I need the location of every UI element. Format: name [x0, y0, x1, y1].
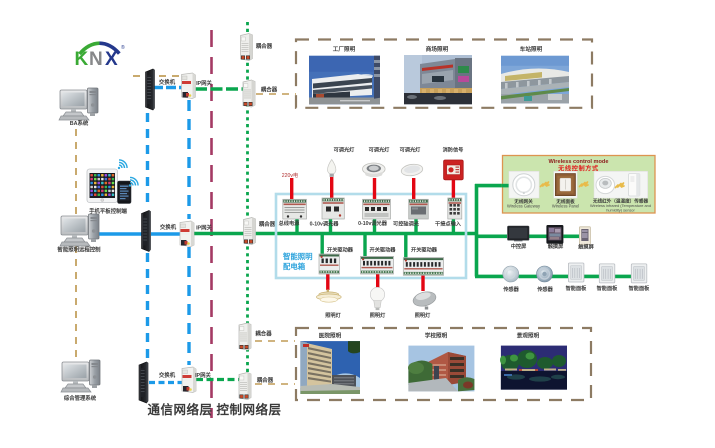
svg-text:耦合器: 耦合器 [257, 376, 274, 384]
svg-text:耦合器: 耦合器 [261, 86, 278, 94]
svg-text:开关驱动器: 开关驱动器 [370, 246, 397, 254]
svg-text:0-10v调光器: 0-10v调光器 [310, 220, 340, 228]
svg-text:总线电源: 总线电源 [279, 219, 301, 227]
svg-text:医院照明: 医院照明 [319, 332, 342, 340]
svg-text:humidity) sensor: humidity) sensor [606, 208, 635, 213]
svg-text:0-10v调光器: 0-10v调光器 [358, 219, 388, 227]
svg-text:传感器: 传感器 [536, 285, 553, 293]
svg-text:耦合器: 耦合器 [259, 220, 276, 228]
svg-text:220v电: 220v电 [282, 171, 298, 179]
svg-text:X: X [105, 49, 118, 70]
svg-text:Wireless Panel: Wireless Panel [552, 204, 579, 209]
svg-text:智能面板: 智能面板 [566, 284, 588, 292]
svg-text:智能面板: 智能面板 [629, 284, 651, 292]
svg-text:消防信号: 消防信号 [443, 146, 464, 154]
svg-text:可调光灯: 可调光灯 [334, 146, 356, 154]
svg-text:开关驱动器: 开关驱动器 [327, 246, 354, 254]
svg-text:中控屏: 中控屏 [511, 242, 527, 250]
svg-text:干接点输入: 干接点输入 [435, 220, 462, 228]
svg-text:照明灯: 照明灯 [370, 311, 386, 319]
svg-text:传感器: 传感器 [502, 285, 519, 293]
svg-text:交换机: 交换机 [160, 223, 177, 231]
svg-text:照明灯: 照明灯 [325, 311, 341, 319]
svg-text:可调光灯: 可调光灯 [369, 146, 391, 154]
svg-text:IP网关: IP网关 [196, 79, 212, 87]
svg-text:智能照明: 智能照明 [282, 252, 313, 261]
svg-text:N: N [89, 49, 103, 70]
svg-text:配电箱: 配电箱 [283, 262, 306, 271]
svg-text:交换机: 交换机 [159, 78, 176, 86]
svg-text:智能照明远程控制: 智能照明远程控制 [56, 246, 101, 254]
svg-text:IP网关: IP网关 [196, 224, 212, 232]
svg-text:IP网关: IP网关 [195, 371, 211, 379]
svg-text:BA系统: BA系统 [70, 119, 89, 127]
svg-text:通信网络层: 通信网络层 [147, 402, 212, 417]
svg-text:触摸屏: 触摸屏 [577, 243, 594, 251]
svg-text:学校照明: 学校照明 [425, 332, 448, 340]
svg-text:K: K [75, 49, 89, 70]
svg-text:开关驱动器: 开关驱动器 [411, 246, 438, 254]
svg-text:®: ® [121, 44, 125, 51]
svg-text:交换机: 交换机 [159, 371, 176, 379]
svg-text:控制网络层: 控制网络层 [216, 402, 281, 417]
svg-text:可控硅调光: 可控硅调光 [393, 220, 420, 228]
svg-text:Wireless control mode: Wireless control mode [549, 159, 609, 165]
svg-text:触摸屏: 触摸屏 [547, 242, 564, 250]
svg-text:综合管理系统: 综合管理系统 [64, 394, 97, 402]
svg-text:工厂照明: 工厂照明 [333, 45, 356, 53]
svg-text:景观照明: 景观照明 [516, 332, 540, 340]
svg-text:车站照明: 车站照明 [520, 45, 543, 53]
svg-text:Wireless Gateway: Wireless Gateway [507, 204, 541, 209]
svg-text:智能面板: 智能面板 [597, 284, 619, 292]
svg-text:可调光灯: 可调光灯 [400, 146, 422, 154]
svg-text:耦合器: 耦合器 [255, 330, 272, 338]
svg-text:耦合器: 耦合器 [256, 42, 273, 50]
svg-text:照明灯: 照明灯 [415, 311, 431, 319]
svg-text:商场照明: 商场照明 [426, 45, 449, 53]
svg-text:手机平板控制端: 手机平板控制端 [89, 207, 127, 215]
